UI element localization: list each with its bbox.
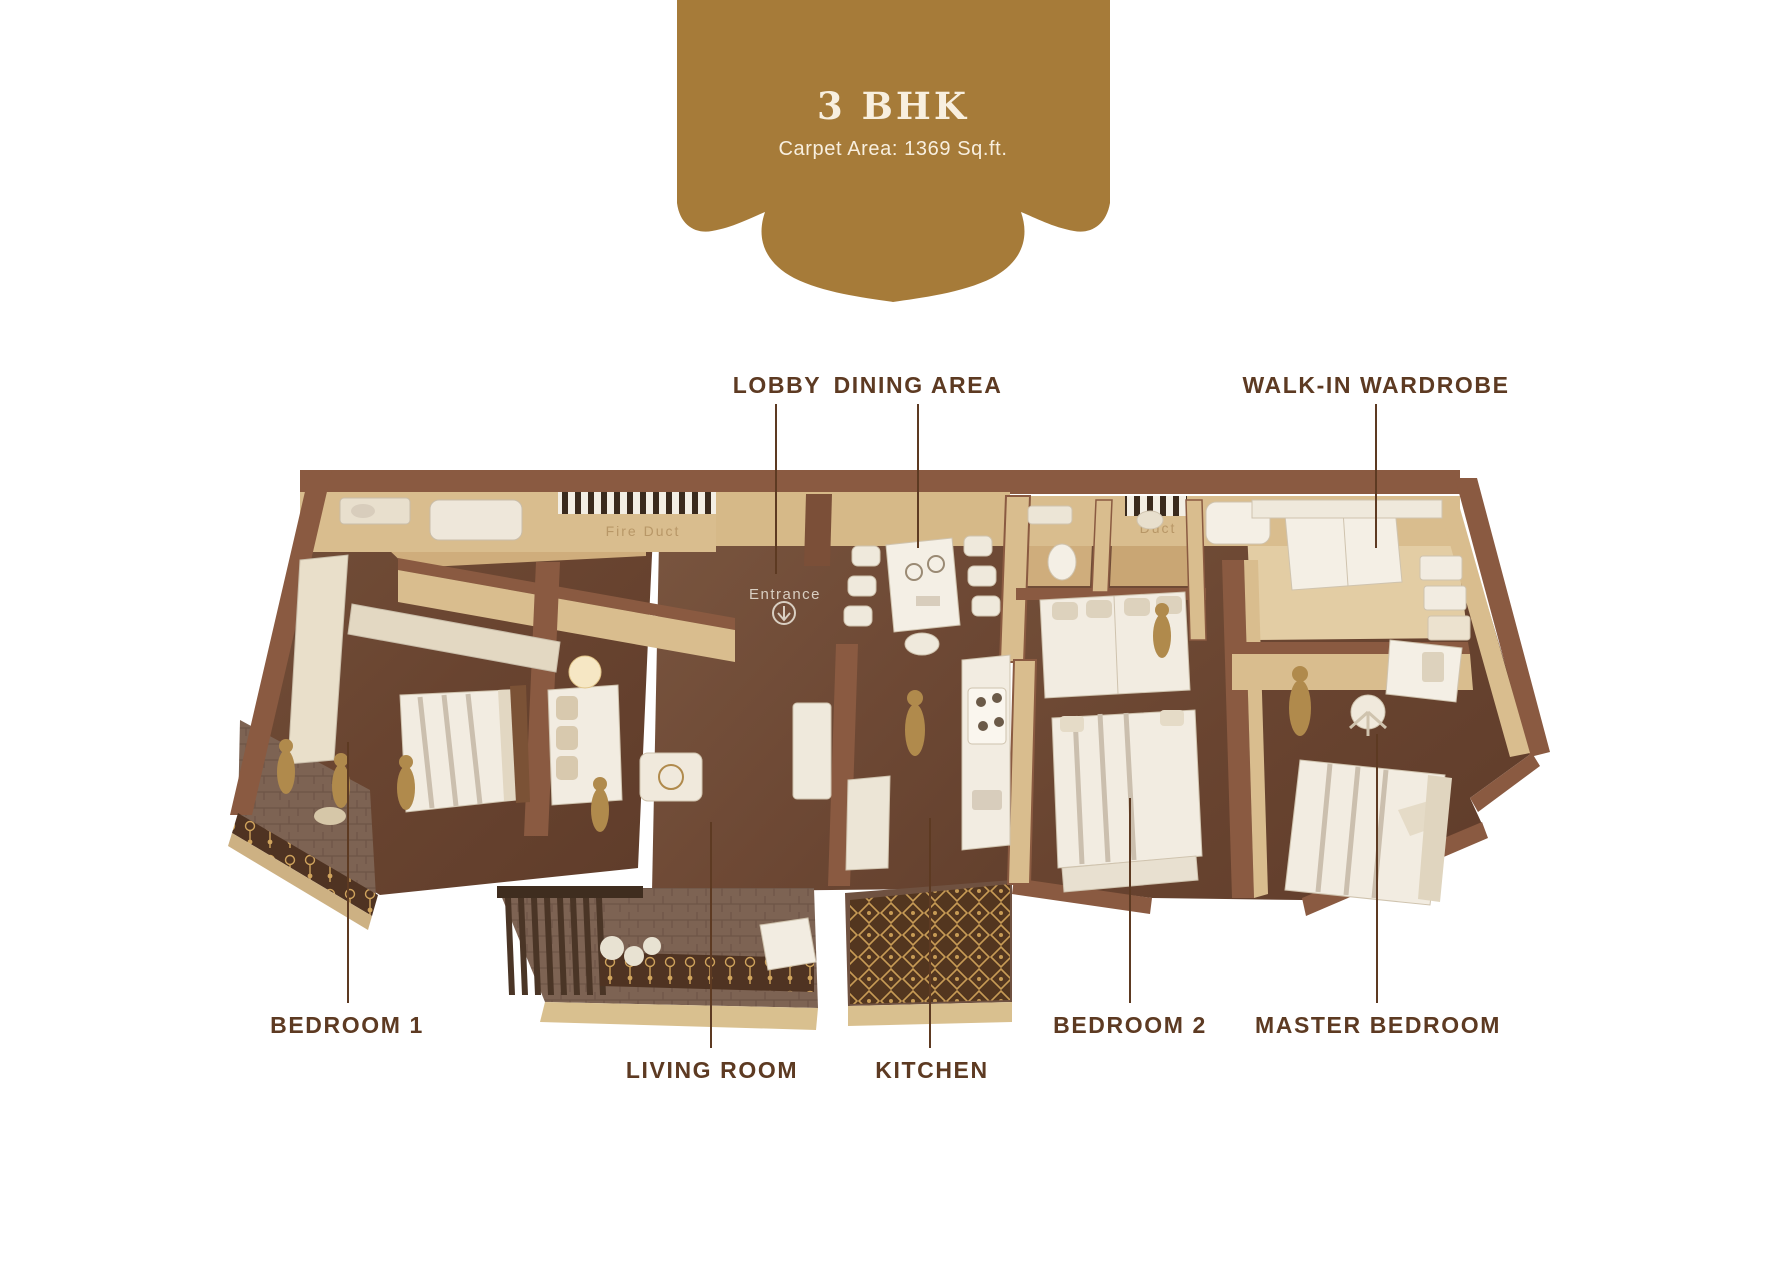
room-label-walk-in-wardrobe: WALK-IN WARDROBE bbox=[1242, 372, 1509, 399]
room-label-bedroom-2: BEDROOM 2 bbox=[1053, 1012, 1207, 1039]
living-room-coffee-table bbox=[640, 753, 702, 801]
room-label-bedroom-1: BEDROOM 1 bbox=[270, 1012, 424, 1039]
leader-line-bedroom1 bbox=[347, 742, 349, 1003]
floor-plan-page: Fire Duct Duct bbox=[0, 0, 1785, 1262]
living-room-sofa bbox=[548, 685, 622, 805]
room-label-kitchen: KITCHEN bbox=[875, 1057, 988, 1084]
entrance-vestibule-wall bbox=[804, 494, 832, 566]
leader-line-bedroom2 bbox=[1129, 798, 1131, 1003]
room-label-lobby: LOBBY bbox=[733, 372, 822, 399]
leader-line-wardrobe bbox=[1375, 404, 1377, 548]
banner-subtitle: Carpet Area: 1369 Sq.ft. bbox=[779, 138, 1008, 161]
duct-text-left: Fire Duct bbox=[606, 523, 681, 539]
leader-line-kitchen bbox=[929, 818, 931, 1048]
leader-line-dining bbox=[917, 404, 919, 548]
bedroom1-bed bbox=[400, 685, 530, 812]
room-label-master-bedroom: MASTER BEDROOM bbox=[1255, 1012, 1501, 1039]
top-wall-cap bbox=[300, 470, 1460, 494]
room-label-living-room: LIVING ROOM bbox=[626, 1057, 798, 1084]
entrance-text: Entrance bbox=[749, 586, 821, 603]
leader-line-living bbox=[710, 822, 712, 1048]
bath3-right-wall bbox=[1186, 500, 1206, 640]
bath-divider-wall bbox=[1092, 500, 1112, 592]
leader-line-master bbox=[1376, 734, 1378, 1003]
louver-header bbox=[497, 886, 643, 898]
kitchen-right-wall bbox=[1008, 660, 1036, 884]
living-room-lamp bbox=[569, 656, 601, 688]
banner-title: 3 BHK bbox=[817, 84, 969, 128]
balcony-lounge-chair bbox=[760, 918, 816, 970]
duct-grill-left bbox=[558, 492, 716, 514]
dining-right-wall bbox=[1000, 496, 1030, 662]
leader-line-lobby bbox=[775, 404, 777, 574]
bedroom2-furniture bbox=[1040, 592, 1202, 892]
room-label-dining-area: DINING AREA bbox=[834, 372, 1003, 399]
